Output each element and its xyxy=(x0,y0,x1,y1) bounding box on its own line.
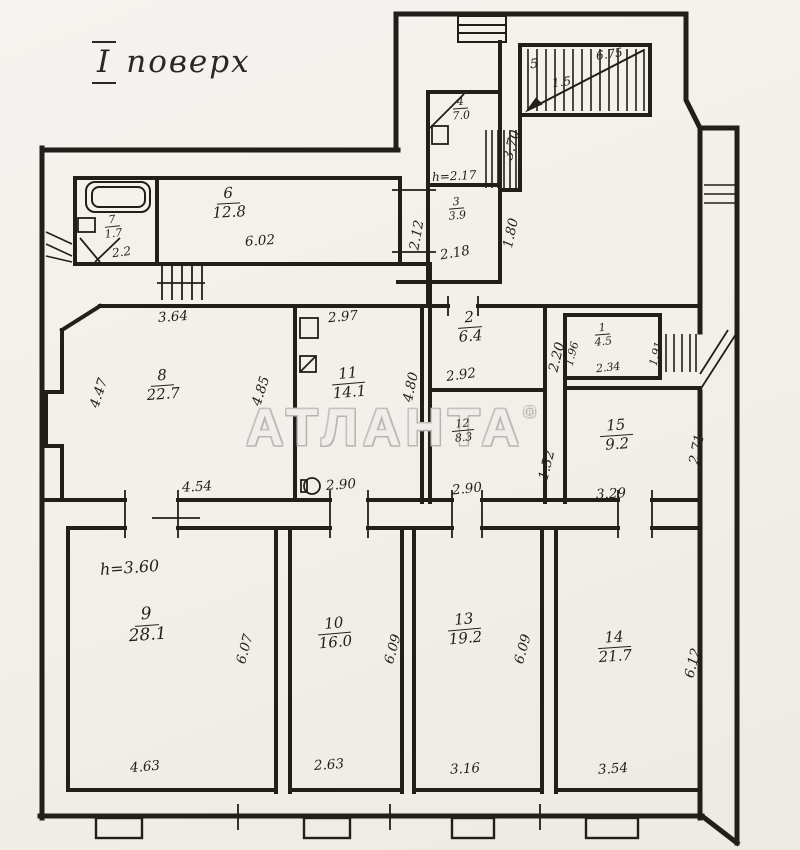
window-marks-right xyxy=(704,185,736,203)
agency-watermark: АТЛАНТА® xyxy=(246,398,535,458)
room-9-label: 9 28.1 xyxy=(127,605,167,646)
porch-steps xyxy=(96,818,638,838)
room-12-dim-bottom: 2.90 xyxy=(451,480,482,497)
room-3-area: 3.9 xyxy=(448,208,467,222)
page-title: Іповерх xyxy=(92,44,251,80)
room-8-dim-bottom: 4.54 xyxy=(182,479,213,495)
registered-trademark-icon: ® xyxy=(524,404,535,421)
room-9-area: 28.1 xyxy=(128,625,167,646)
floor-word: поверх xyxy=(126,44,250,80)
room-2-dim-bottom: 2.92 xyxy=(445,366,477,384)
room-14-dim-bottom: 3.54 xyxy=(598,761,629,777)
room-14-area: 21.7 xyxy=(598,647,632,666)
room-4-area: 7.0 xyxy=(452,108,470,122)
room-1-dim-bottom: 2.34 xyxy=(595,361,621,375)
room-15-area: 9.2 xyxy=(605,435,630,453)
kitchen-fixtures-icons xyxy=(300,318,318,372)
room-11-label: 11 14.1 xyxy=(331,365,367,402)
room-8-label: 8 22.7 xyxy=(145,367,181,404)
room-10-label: 10 16.0 xyxy=(317,615,353,652)
basement-steps-hatch xyxy=(157,266,205,300)
room-6-dim-bottom: 6.02 xyxy=(245,233,276,249)
toilet-icon xyxy=(301,478,320,494)
room-12-label: 12 8.3 xyxy=(451,417,475,444)
room-4-label: 4 7.0 xyxy=(451,95,470,121)
room-6-label: 6 12.8 xyxy=(211,185,246,221)
room-13-label: 13 19.2 xyxy=(447,611,483,648)
watermark-text: АТЛАНТА xyxy=(246,399,524,457)
entrance-opening-hatch xyxy=(700,330,736,390)
stairs-number: 5 xyxy=(529,58,539,72)
room-4-number: 4 xyxy=(452,96,468,110)
floor-plan-scan: Іповерх АТЛАНТА® 6 12.8 6.02 2.12 7 1.7 … xyxy=(0,0,800,850)
room-15-label: 15 9.2 xyxy=(599,417,634,454)
room-11-area: 14.1 xyxy=(332,382,367,402)
room-13-area: 19.2 xyxy=(448,628,483,648)
room-1-area: 4.5 xyxy=(594,334,613,348)
room-11-dim-bottom: 2.90 xyxy=(326,477,357,493)
stairs-area: 1.5 xyxy=(551,75,572,90)
room-8-dim-top: 3.64 xyxy=(158,309,189,325)
room-15-dim-bottom: 3.29 xyxy=(596,486,627,502)
room-6-number: 6 xyxy=(216,185,240,204)
room-10-area: 16.0 xyxy=(318,632,353,652)
room-10-dim-bottom: 2.63 xyxy=(314,757,345,773)
room-1-label: 1 4.5 xyxy=(593,321,613,348)
entry-door-hatch-room1 xyxy=(666,334,696,372)
room-2-area: 6.4 xyxy=(458,327,483,345)
room-8-area: 22.7 xyxy=(146,385,180,404)
room-2-label: 2 6.4 xyxy=(457,309,483,345)
bathtub-icon xyxy=(86,182,150,212)
room-7-label: 7 1.7 xyxy=(103,213,123,240)
room-3-label: 3 3.9 xyxy=(447,195,467,222)
room-7-note: 2.2 xyxy=(111,245,132,260)
window-marks-left xyxy=(46,232,72,262)
door-jamb-ticks xyxy=(125,190,652,830)
room-14-label: 14 21.7 xyxy=(597,629,633,666)
room-6-area: 12.8 xyxy=(212,203,246,221)
room-13-dim-bottom: 3.16 xyxy=(450,761,481,777)
floor-number: І xyxy=(92,41,116,84)
room-4-height-note: h=2.17 xyxy=(432,169,477,184)
room-12-area: 8.3 xyxy=(454,430,473,444)
room-7-area: 1.7 xyxy=(104,226,123,240)
chimney-shaft xyxy=(458,16,506,42)
room-9-dim-bottom: 4.63 xyxy=(129,759,160,776)
room-11-dim-top: 2.97 xyxy=(327,309,358,326)
